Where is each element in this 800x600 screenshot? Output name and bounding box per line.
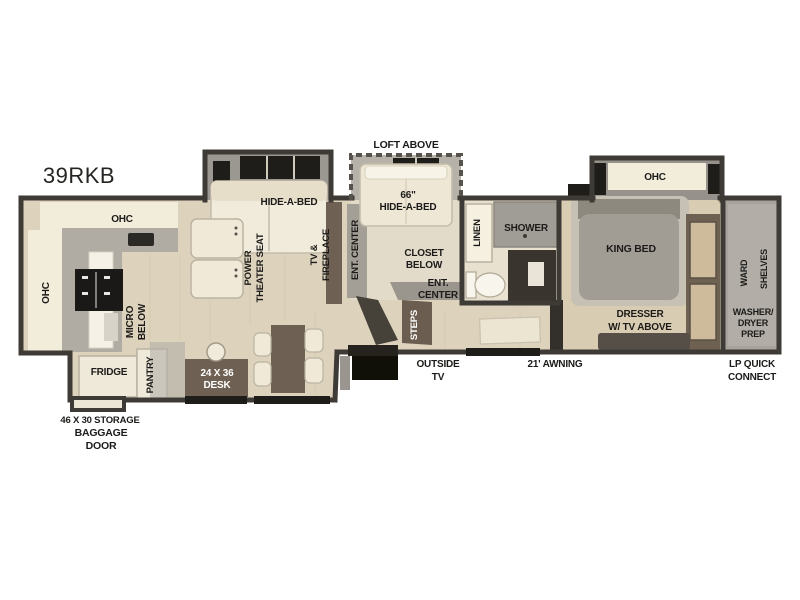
label-desk-line2: DESK [204,380,232,391]
label-loft-bed-line1: 66" [400,190,416,201]
label-linen: LINEN [472,219,483,247]
label-loft-bed-line2: HIDE-A-BED [380,202,437,213]
wardrobe-mirror-1 [690,222,716,278]
desk-chair [207,343,225,361]
label-baggage-line1: BAGGAGE [75,427,128,439]
shower-drain [523,234,527,238]
label-outside-tv-line1: OUTSIDE [416,359,460,370]
king-mattress [579,214,679,300]
label-ent-center-line1: ENT. [428,278,449,289]
loft-bed-pillows [365,166,447,179]
label-washer-line2: DRYER [738,318,769,328]
bedroom-door-dark [550,300,563,350]
label-washer-line3: PREP [741,329,765,339]
label-closet-line2: BELOW [406,260,443,271]
range-icon [75,269,123,311]
label-micro-line2: BELOW [137,303,148,340]
ohc-cabinet-top [40,202,178,230]
label-baggage-line2: DOOR [86,440,117,452]
king-slide-right-window [708,164,720,194]
vanity-sink [528,262,544,286]
label-ohc-bedroom: OHC [644,172,666,183]
label-loft-above: LOFT ABOVE [373,139,438,151]
dinette-table [271,325,305,393]
label-washer-line1: WASHER/ [733,307,774,317]
label-steps: STEPS [409,310,420,340]
bedroom-top-window [568,184,592,197]
label-pantry: PANTRY [145,356,156,394]
floorplan-page: 39RKB OHC OHC MICRO BELOW FRIDGE PANTRY … [0,0,800,600]
label-storage: 46 X 30 STORAGE [60,415,139,426]
label-ohc-kitchen-left: OHC [41,282,52,304]
window-under-desk [185,396,247,404]
theater-seat-1 [191,219,243,258]
king-slide-left-window [594,163,606,195]
theater-seat-2 [191,260,243,298]
sofa-slide-window [240,156,320,179]
dishwasher-strip [104,313,118,341]
label-theater-line2: THEATER SEAT [255,233,266,302]
floorplan-39rkb: 39RKB OHC OHC MICRO BELOW FRIDGE PANTRY … [0,0,800,600]
page-title: 39RKB [43,163,115,188]
outside-tv-unit [352,356,398,380]
label-ohc-kitchen-top: OHC [111,214,133,225]
label-theater-line1: POWER [243,250,254,285]
window-under-dinette [254,396,330,404]
label-outside-tv-line2: TV [432,372,445,383]
label-king-bed: KING BED [606,243,656,255]
outside-tv-bracket [340,356,350,390]
toilet-bowl [475,273,505,297]
hall-bench [480,317,541,344]
label-ent-center-vertical: ENT. CENTER [350,220,361,280]
label-lp-line1: LP QUICK [729,359,776,370]
label-ent-center-line2: CENTER [418,290,459,301]
label-dresser-line2: W/ TV ABOVE [608,322,672,333]
dresser [598,333,690,350]
label-ward: WARD [739,259,749,286]
label-desk-line1: 24 X 36 [200,368,234,379]
label-closet-line1: CLOSET [404,248,443,259]
counter-top [62,228,178,252]
label-dresser-line1: DRESSER [617,309,665,320]
label-fridge: FRIDGE [91,367,128,378]
window-hall [466,348,540,356]
label-tv-line2: FIREPLACE [321,229,332,281]
label-shower: SHOWER [504,223,549,234]
sink-icon [128,233,154,246]
label-micro-line1: MICRO [125,305,136,338]
entry-door [348,345,398,356]
wardrobe-mirror-2 [690,284,716,340]
label-shelves: SHELVES [759,249,769,289]
label-awning: 21' AWNING [527,359,582,370]
label-hide-a-bed: HIDE-A-BED [261,197,318,208]
label-tv-line1: TV & [309,244,320,265]
storage-bump [72,398,124,410]
label-lp-line2: CONNECT [728,372,776,383]
